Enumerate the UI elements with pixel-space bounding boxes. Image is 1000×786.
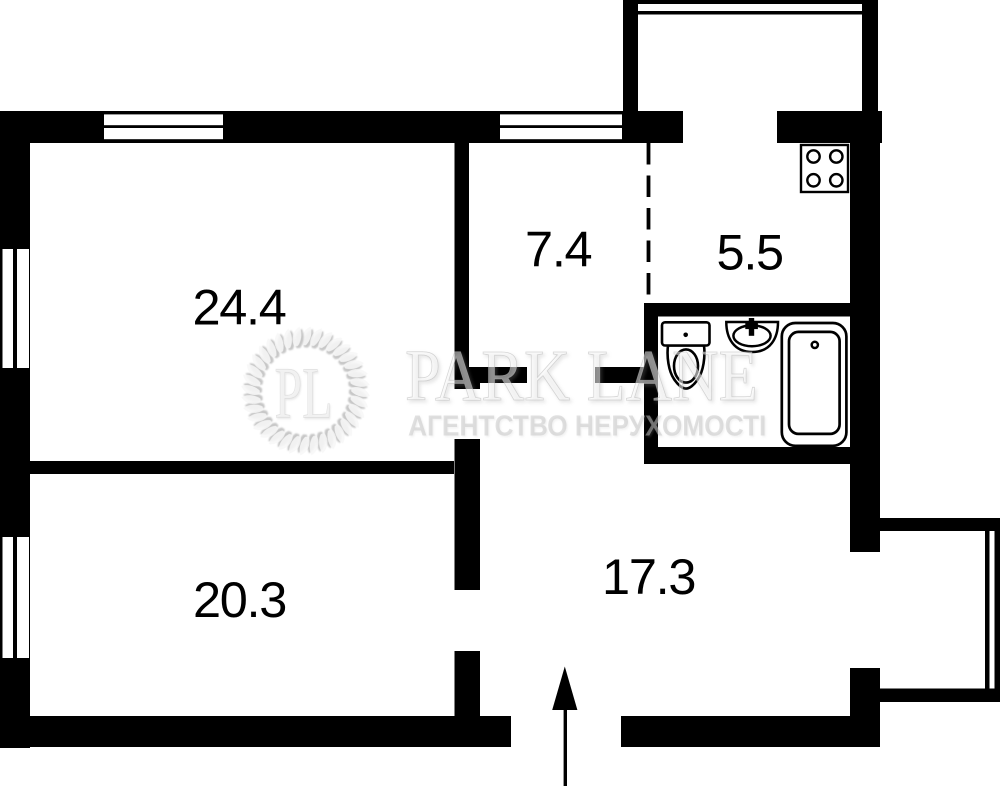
svg-text:17.3: 17.3	[602, 548, 695, 605]
svg-text:PARK LANE: PARK LANE	[405, 335, 758, 416]
svg-text:5.5: 5.5	[717, 224, 783, 281]
svg-text:7.4: 7.4	[525, 221, 592, 278]
svg-text:АГЕНТСТВО НЕРУХОМОСТІ: АГЕНТСТВО НЕРУХОМОСТІ	[408, 410, 766, 442]
svg-text:24.4: 24.4	[192, 279, 285, 336]
svg-text:PL: PL	[275, 352, 333, 434]
svg-text:20.3: 20.3	[193, 571, 286, 628]
